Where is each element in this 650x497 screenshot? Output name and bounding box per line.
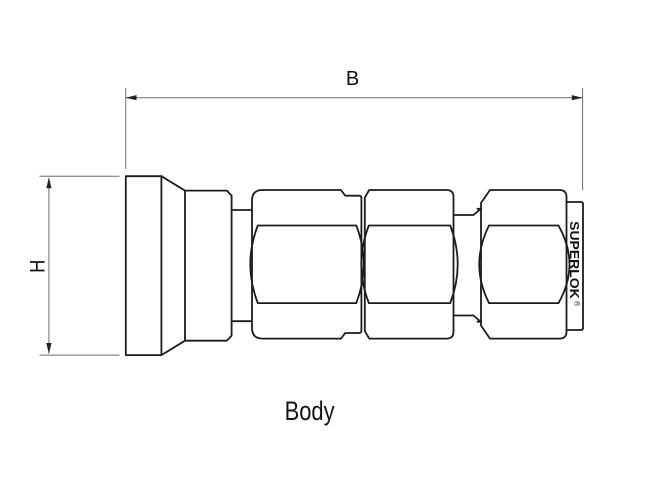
svg-text:SUPERLOK: SUPERLOK xyxy=(567,221,581,299)
svg-text:®: ® xyxy=(573,301,582,307)
svg-text:B: B xyxy=(346,68,359,90)
svg-text:Body: Body xyxy=(285,396,335,426)
svg-text:H: H xyxy=(27,260,50,273)
